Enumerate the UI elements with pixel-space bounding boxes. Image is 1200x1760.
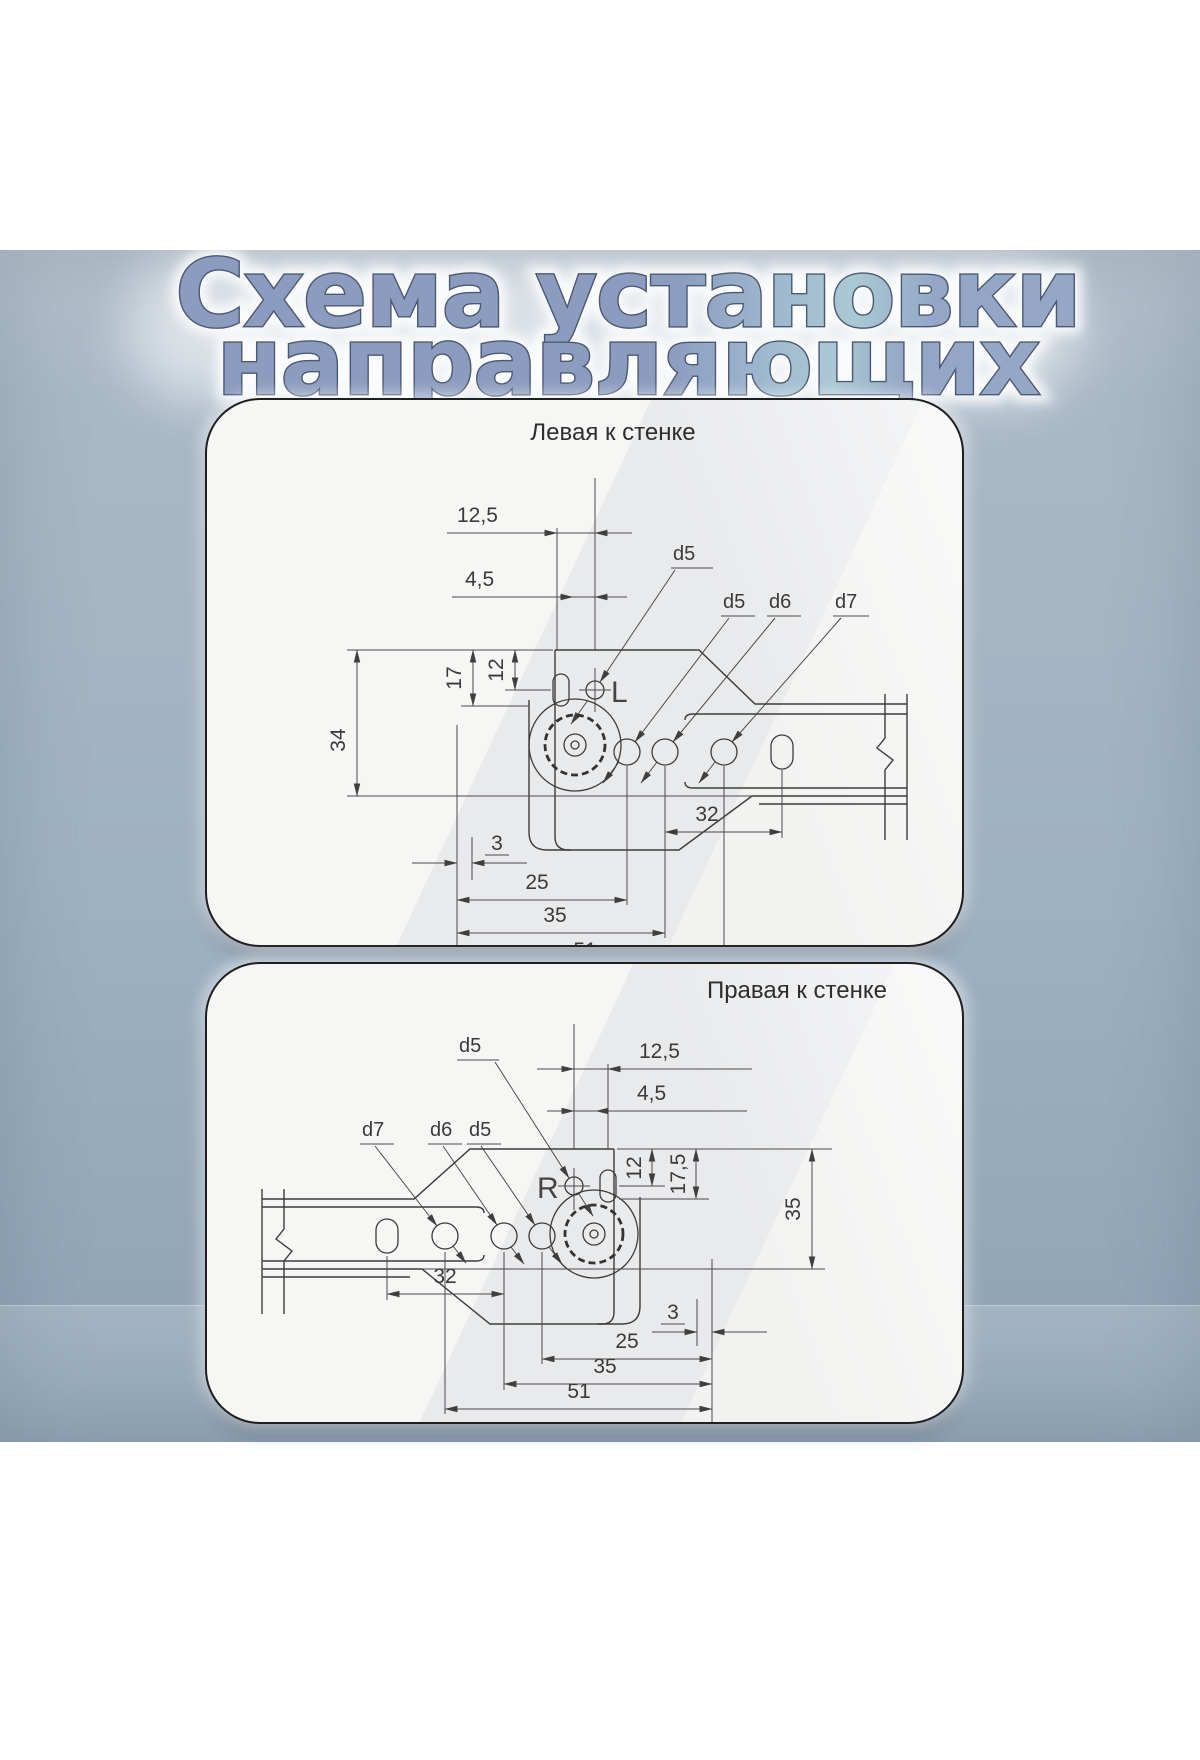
hole-label-d7: d7: [362, 1119, 384, 1141]
dim-label-51: 51: [567, 1380, 590, 1403]
rail-holes: [614, 735, 793, 769]
side-marking-letter: L: [611, 676, 628, 709]
break-symbol: [276, 1189, 292, 1314]
page-title: Схема установки направляющих Схема устан…: [0, 242, 1200, 417]
dim-label-12-5: 12,5: [639, 1040, 680, 1063]
panel-caption: Правая к стенке: [707, 977, 887, 1004]
technical-drawing-right: Правая к стенке 12,5 4,5 d5: [207, 964, 962, 1422]
dim-label-12: 12: [485, 658, 508, 681]
leader-d6: d6: [641, 591, 801, 783]
hole-label-d5: d5: [723, 591, 745, 613]
panel-left-rail: Левая к стенке 12,5 4,5 d5: [205, 398, 964, 947]
dim-label-12: 12: [623, 1156, 646, 1179]
center-reference-lines: [557, 478, 595, 712]
panel-right-rail: Правая к стенке 12,5 4,5 d5: [205, 962, 964, 1424]
panel-caption: Левая к стенке: [530, 419, 695, 446]
bottom-dimensions: 32 3 25 35 51: [387, 1252, 767, 1422]
dim-label-3: 3: [667, 1301, 679, 1324]
dimension-12-5: 12,5: [537, 1040, 752, 1069]
hole-d6: [652, 739, 678, 765]
hole-d5: [529, 1223, 555, 1249]
dim-label-17-5: 17,5: [667, 1154, 690, 1195]
hole-d6: [491, 1223, 517, 1249]
bottom-dimensions: 32 3 25 35 51: [412, 725, 782, 945]
hole-d5: [614, 739, 640, 765]
side-marking-letter: R: [537, 1172, 559, 1205]
hole-label-d5: d5: [469, 1119, 491, 1141]
page-root: Схема установки направляющих Схема устан…: [0, 0, 1200, 1760]
dim-label-17: 17: [443, 666, 466, 689]
dim-label-32: 32: [433, 1265, 456, 1288]
hole-label-d6: d6: [430, 1119, 452, 1141]
dimension-4-5: 4,5: [452, 568, 627, 597]
dim-label-35: 35: [543, 904, 566, 927]
dimension-12-5: 12,5: [447, 504, 632, 533]
hole-d7: [711, 739, 737, 765]
dim-label-51: 51: [573, 939, 596, 945]
dim-label-32: 32: [695, 803, 718, 826]
dim-label-35: 35: [593, 1355, 616, 1378]
dim-label-4-5: 4,5: [637, 1082, 666, 1105]
slot-hole-rail: [376, 1219, 398, 1253]
dim-label-3: 3: [491, 832, 503, 855]
dim-label-4-5: 4,5: [465, 568, 494, 591]
rail-holes: [376, 1219, 555, 1253]
hole-d7: [432, 1223, 458, 1249]
dim-label-25: 25: [525, 871, 548, 894]
leader-d7: d7: [699, 591, 869, 783]
dim-label-12-5: 12,5: [457, 504, 498, 527]
hole-label-d7: d7: [835, 591, 857, 613]
break-symbol: [877, 694, 893, 840]
rail: [262, 1189, 484, 1314]
dimension-4-5: 4,5: [547, 1082, 747, 1111]
roller-wheel: [529, 699, 621, 791]
leader-d5-top: d5: [571, 543, 713, 724]
hole-label-d5-top: d5: [459, 1035, 481, 1057]
roller-wheel: [550, 1190, 638, 1278]
center-reference-lines: [574, 1024, 608, 1210]
dim-label-35-vert: 35: [782, 1197, 805, 1220]
hole-label-d5-top: d5: [673, 543, 695, 565]
slot-hole-rail: [771, 735, 793, 769]
hole-label-d6: d6: [769, 591, 791, 613]
dim-label-34: 34: [327, 728, 350, 752]
technical-drawing-left: Левая к стенке 12,5 4,5 d5: [207, 400, 962, 945]
dim-label-25: 25: [615, 1330, 638, 1353]
